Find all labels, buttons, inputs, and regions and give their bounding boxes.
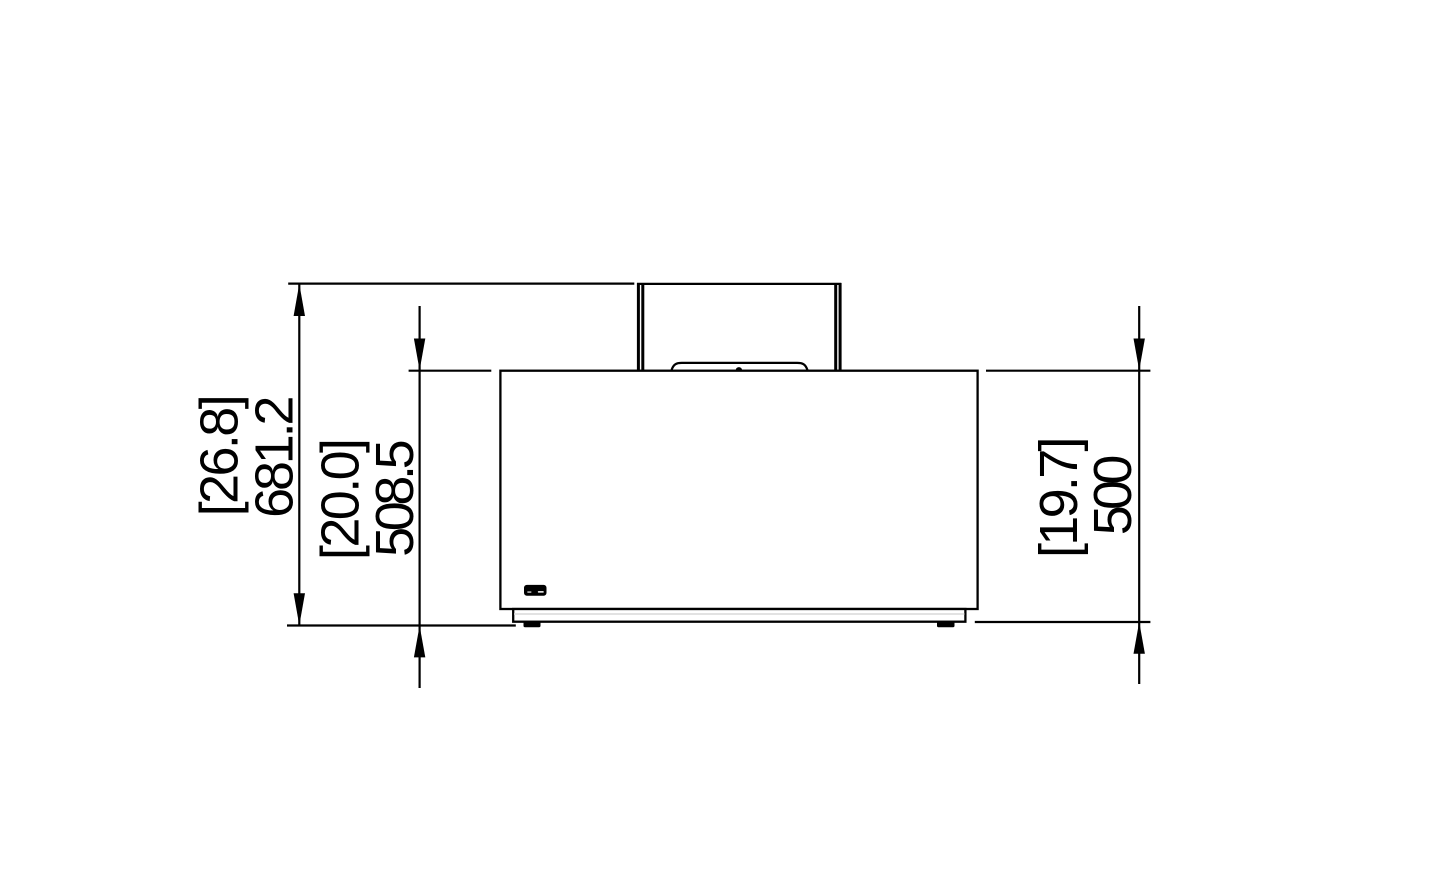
svg-text:681.2: 681.2 <box>245 398 305 518</box>
svg-text:[26.8]: [26.8] <box>190 397 250 517</box>
svg-text:[20.0]: [20.0] <box>311 441 371 561</box>
svg-text:500: 500 <box>1083 457 1143 536</box>
svg-text:[19.7]: [19.7] <box>1029 439 1089 558</box>
svg-text:508.5: 508.5 <box>365 441 425 556</box>
